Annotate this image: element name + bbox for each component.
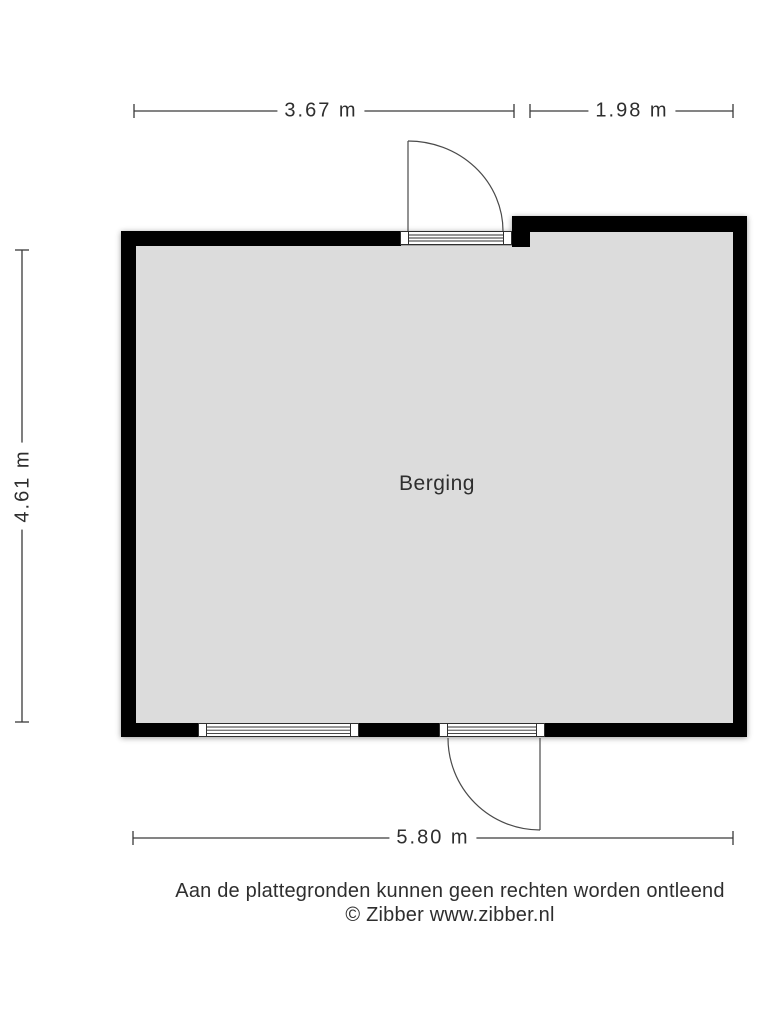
door-top-swing-arc (408, 141, 503, 231)
door-bottom (448, 738, 540, 830)
footer: Aan de plattegronden kunnen geen rechten… (66, 880, 768, 927)
credit-text: © Zibber www.zibber.nl (66, 904, 768, 928)
wall-top-left (121, 231, 401, 246)
door-bottom-threshold (440, 724, 545, 737)
disclaimer-text: Aan de plattegronden kunnen geen rechten… (66, 880, 768, 904)
door-bottom-swing-arc (448, 738, 540, 830)
wall-top-right (512, 216, 747, 232)
floorplan-page: 3.67 m 1.98 m 4.61 m 5.80 m Berging Aan … (0, 0, 768, 1024)
window-bottom (199, 724, 359, 737)
wall-left (121, 231, 136, 737)
door-top-threshold (401, 232, 512, 245)
door-top (408, 141, 503, 231)
dimension-label-bottom: 5.80 m (389, 827, 476, 850)
wall-right (733, 216, 747, 737)
dimension-label-left: 4.61 m (12, 442, 35, 529)
dimension-label-top-left: 3.67 m (277, 100, 364, 123)
room-label: Berging (399, 472, 475, 496)
dimension-label-top-right: 1.98 m (588, 100, 675, 123)
floorplan-drawing (0, 0, 768, 1024)
wall-step (512, 216, 530, 247)
